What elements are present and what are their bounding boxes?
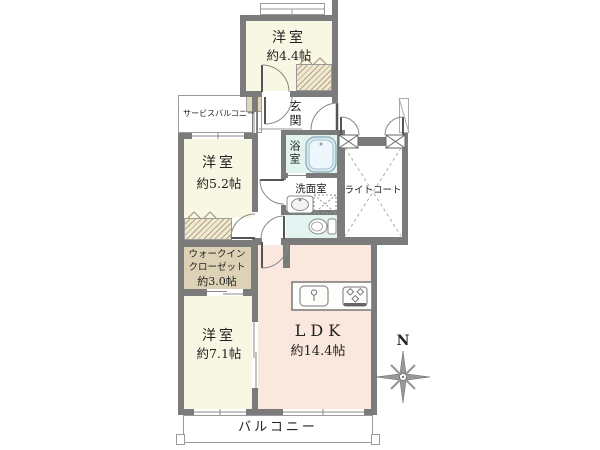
door-bedroom52 <box>231 214 255 238</box>
service-balcony-label: サービスバルコニー <box>183 110 255 118</box>
bedroom-71-name: 洋室 <box>202 329 236 343</box>
door-washroom <box>260 180 284 204</box>
bedroom-71-size: 約7.1帖 <box>197 348 242 361</box>
bedroom-44-size: 約4.4帖 <box>267 50 312 63</box>
x-box-right <box>386 135 405 148</box>
sliding-door-bedroom71-ldk <box>252 322 258 388</box>
bathroom-door-gap <box>288 173 306 178</box>
toilet-icon <box>309 219 336 234</box>
balcony-label: バルコニー <box>238 421 318 434</box>
washer-pan-icon <box>314 195 336 213</box>
linework-overlay <box>0 0 600 450</box>
ldk-name: LDK <box>295 323 345 339</box>
sink-icon <box>287 196 313 213</box>
x-box-left <box>339 135 358 148</box>
sliding-door-wic <box>207 289 243 296</box>
bedroom-52-name: 洋室 <box>202 156 236 170</box>
ldk-size: 約14.4帖 <box>291 345 346 358</box>
door-bedroom44 <box>262 65 289 92</box>
compass-star <box>376 351 430 403</box>
bathroom-label: 浴室 <box>289 140 300 166</box>
compass-north-label: N <box>397 334 410 348</box>
wic-size: 約3.0帖 <box>197 276 237 287</box>
wic-name-line1: ウォークイン <box>188 250 245 260</box>
door-front-entrance <box>311 103 338 130</box>
door-light-court-left <box>341 117 359 135</box>
wic-name-line2: クローゼット <box>188 263 245 273</box>
window-ldk-bottom <box>283 409 364 415</box>
window-bedroom71-bottom <box>194 409 246 415</box>
door-light-court-right <box>385 117 403 135</box>
bathtub-icon <box>306 137 336 172</box>
bedroom-44-name: 洋室 <box>272 31 306 45</box>
light-court-label: ライトコート <box>344 186 401 196</box>
entrance-label: 玄関 <box>289 100 301 128</box>
window-bedroom52-top <box>192 133 244 139</box>
bedroom-52-size: 約5.2帖 <box>197 178 242 191</box>
kitchen-counter <box>292 282 372 310</box>
washroom-label: 洗面室 <box>295 184 327 195</box>
door-toilet <box>261 216 284 239</box>
bay-window-lines <box>260 9 325 15</box>
floorplan-canvas: 洋室 約4.4帖 洋室 約5.2帖 洋室 約7.1帖 LDK 約14.4帖 ウォ… <box>0 0 600 450</box>
door-ldk <box>262 242 288 268</box>
